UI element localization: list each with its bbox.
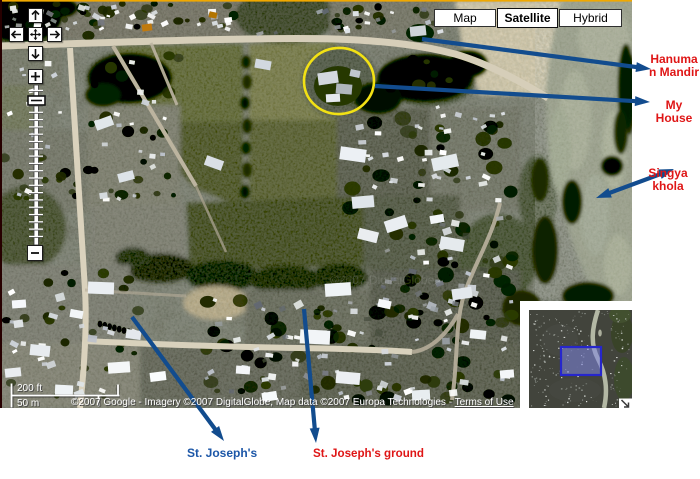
svg-text:©2007 DigitalGlobe: ©2007 DigitalGlobe [330, 273, 435, 287]
